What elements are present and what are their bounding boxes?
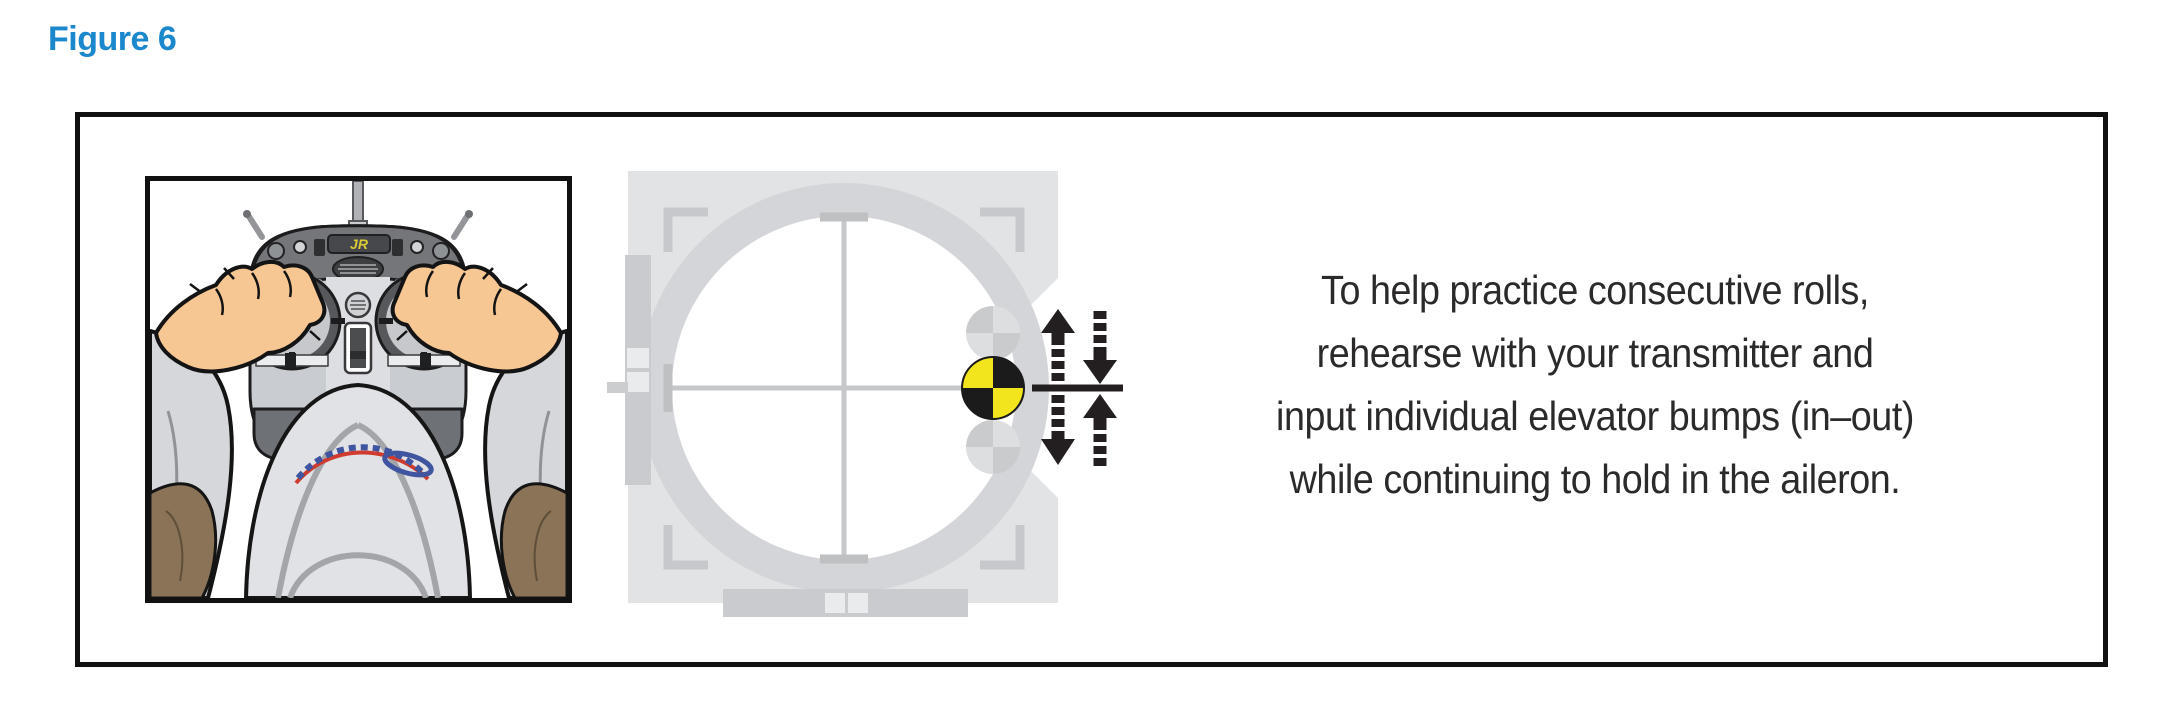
brand-logo: JR xyxy=(350,236,369,252)
caption-line: To help practice consecutive rolls, xyxy=(1163,259,2028,322)
neutral-line xyxy=(1032,385,1123,392)
elevator-bump-arrows xyxy=(1032,309,1123,466)
ghost-stick-position-bottom-icon xyxy=(966,420,1020,474)
ghost-stick-position-top-icon xyxy=(966,306,1020,360)
toggle-switch-left-icon xyxy=(243,210,262,237)
center-emblem-icon xyxy=(346,293,370,317)
ghost-bottom-trim xyxy=(723,589,968,617)
center-slider xyxy=(345,323,371,373)
sleeve-patch xyxy=(150,484,216,598)
up-arrow-icon xyxy=(1083,394,1117,466)
stick-marker-icon xyxy=(963,358,1023,418)
toggle-switch-right-icon xyxy=(454,210,473,237)
figure-caption: To help practice consecutive rolls, rehe… xyxy=(1163,259,2028,511)
hands-on-transmitter-illustration: JR xyxy=(150,181,567,598)
figure-frame: JR xyxy=(75,112,2108,667)
caption-line: input individual elevator bumps (in–out) xyxy=(1163,385,2028,448)
ghost-left-trim xyxy=(625,255,651,485)
caption-line: rehearse with your transmitter and xyxy=(1163,322,2028,385)
caption-line: while continuing to hold in the aileron. xyxy=(1163,448,2028,511)
figure-title: Figure 6 xyxy=(48,20,176,59)
elevator-bump-diagram xyxy=(600,160,1140,630)
down-arrow-icon xyxy=(1083,311,1117,384)
transmitter-illustration-frame: JR xyxy=(145,176,572,603)
